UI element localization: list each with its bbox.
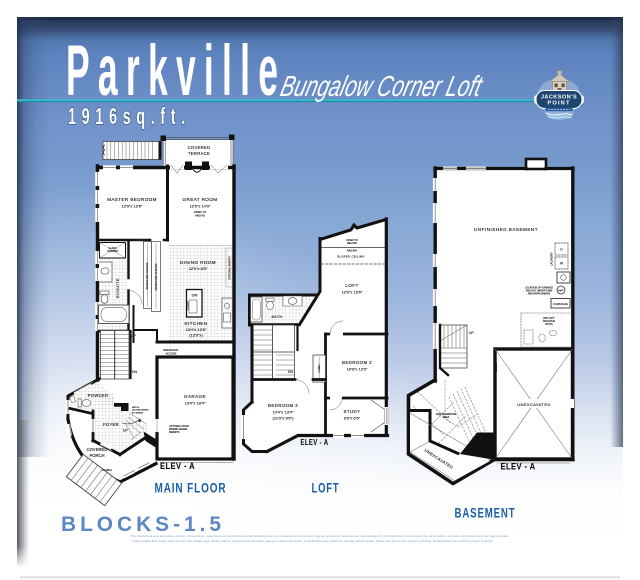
- svg-text:BATH): BATH): [546, 323, 553, 326]
- svg-text:LOFT: LOFT: [345, 283, 358, 288]
- svg-text:ELEV - A: ELEV - A: [301, 437, 329, 447]
- svg-text:UP: UP: [131, 334, 136, 338]
- svg-text:(12'0"x): (12'0"x): [189, 333, 203, 338]
- svg-text:WARDROBE SLIDERS: WARDROBE SLIDERS: [154, 263, 158, 290]
- svg-text:FLUSH: FLUSH: [186, 301, 190, 310]
- svg-text:ENSUITE: ENSUITE: [116, 278, 120, 298]
- svg-text:WARDROBE SLIDERS: WARDROBE SLIDERS: [145, 262, 149, 289]
- svg-text:TERRACE: TERRACE: [188, 151, 210, 156]
- svg-text:LINEN: LINEN: [317, 365, 321, 373]
- svg-text:DN: DN: [132, 370, 137, 374]
- svg-text:STUDY: STUDY: [344, 409, 361, 414]
- svg-text:Actual usable floor space may: Actual usable floor space may vary from …: [132, 539, 492, 543]
- svg-text:8'5"x 6'5": 8'5"x 6'5": [344, 416, 361, 421]
- svg-text:UP: UP: [469, 331, 474, 335]
- svg-text:GREAT ROOM: GREAT ROOM: [183, 197, 218, 202]
- svg-text:HWT: HWT: [558, 289, 564, 292]
- svg-text:The floorplans and elevations: The floorplans and elevations shown, dim…: [131, 534, 509, 538]
- svg-text:PORCH: PORCH: [89, 453, 104, 458]
- svg-text:BY GRADE: BY GRADE: [132, 411, 144, 414]
- svg-text:BASEMENT: BASEMENT: [455, 506, 516, 521]
- svg-text:ELEV - A: ELEV - A: [501, 462, 536, 473]
- svg-text:10'9"x 12'0": 10'9"x 12'0": [347, 367, 368, 372]
- svg-text:ELEV - A: ELEV - A: [160, 461, 195, 472]
- svg-text:(AS REQUIRED): (AS REQUIRED): [132, 409, 149, 412]
- svg-text:COVERED: COVERED: [188, 145, 211, 150]
- svg-text:UP: UP: [123, 429, 128, 433]
- svg-text:FURNACE: FURNACE: [553, 302, 568, 306]
- svg-text:BATH: BATH: [271, 315, 282, 319]
- svg-text:MASTER BEDROOM: MASTER BEDROOM: [107, 197, 157, 202]
- svg-text:DN: DN: [288, 370, 293, 374]
- svg-text:COVERED: COVERED: [87, 447, 108, 452]
- svg-text:SLOPED CEILING: SLOPED CEILING: [337, 255, 365, 259]
- svg-text:LOFT: LOFT: [312, 481, 340, 496]
- svg-text:PERMITS: PERMITS: [169, 431, 180, 434]
- svg-text:Bungalow Corner Loft: Bungalow Corner Loft: [277, 70, 486, 102]
- svg-text:13'4"x 18'4": 13'4"x 18'4": [185, 401, 206, 406]
- svg-text:1/2 WALL: 1/2 WALL: [102, 469, 113, 472]
- svg-text:AREA: AREA: [443, 416, 450, 419]
- svg-text:(11'0"x 9'6"): (11'0"x 9'6"): [273, 416, 295, 421]
- svg-text:SHOWER: SHOWER: [107, 250, 118, 253]
- svg-text:12'0"x 14'0": 12'0"x 14'0": [190, 204, 211, 209]
- svg-text:UNFINISHED BASEMENT: UNFINISHED BASEMENT: [474, 227, 538, 232]
- svg-text:ARE APPROXIMATE: ARE APPROXIMATE: [528, 293, 551, 296]
- svg-text:BELOW: BELOW: [347, 241, 357, 245]
- svg-text:JACKSON’S: JACKSON’S: [541, 94, 577, 100]
- svg-text:BEDROOM 2: BEDROOM 2: [342, 360, 372, 365]
- svg-text:BEDROOM 3: BEDROOM 3: [268, 403, 298, 408]
- svg-text:MAIN FLOOR: MAIN FLOOR: [155, 481, 227, 496]
- svg-text:GARAGE: GARAGE: [184, 394, 206, 399]
- svg-text:RAILING: RAILING: [347, 249, 357, 253]
- svg-text:13'4"x 12'8": 13'4"x 12'8": [186, 327, 207, 332]
- svg-text:WIDTH: WIDTH: [132, 407, 140, 409]
- svg-text:12'0"x 8'5": 12'0"x 8'5": [189, 266, 208, 271]
- svg-text:12'0"x 12'6": 12'0"x 12'6": [122, 204, 143, 209]
- svg-text:BLOCKS-1.5: BLOCKS-1.5: [61, 513, 225, 536]
- svg-text:12'0"x 15'6": 12'0"x 15'6": [342, 290, 363, 295]
- svg-text:KITCHEN: KITCHEN: [185, 321, 208, 326]
- svg-text:OPTIONAL PANTRY: OPTIONAL PANTRY: [228, 256, 232, 280]
- svg-text:DINING ROOM: DINING ROOM: [180, 260, 216, 265]
- svg-text:14'4"x 13'4": 14'4"x 13'4": [273, 410, 294, 415]
- svg-text:ABOVE: ABOVE: [195, 214, 205, 218]
- svg-text:DW: DW: [192, 294, 198, 298]
- svg-text:UNEXCAVATED: UNEXCAVATED: [517, 402, 551, 407]
- svg-text:POINT: POINT: [547, 101, 570, 107]
- svg-text:ACCESS: ACCESS: [166, 352, 177, 356]
- svg-text:LAUNDRY: LAUNDRY: [550, 252, 554, 266]
- svg-text:BREAKFAST: BREAKFAST: [163, 348, 179, 352]
- svg-text:FOYER: FOYER: [103, 422, 119, 427]
- svg-text:GARAGE: GARAGE: [495, 362, 498, 372]
